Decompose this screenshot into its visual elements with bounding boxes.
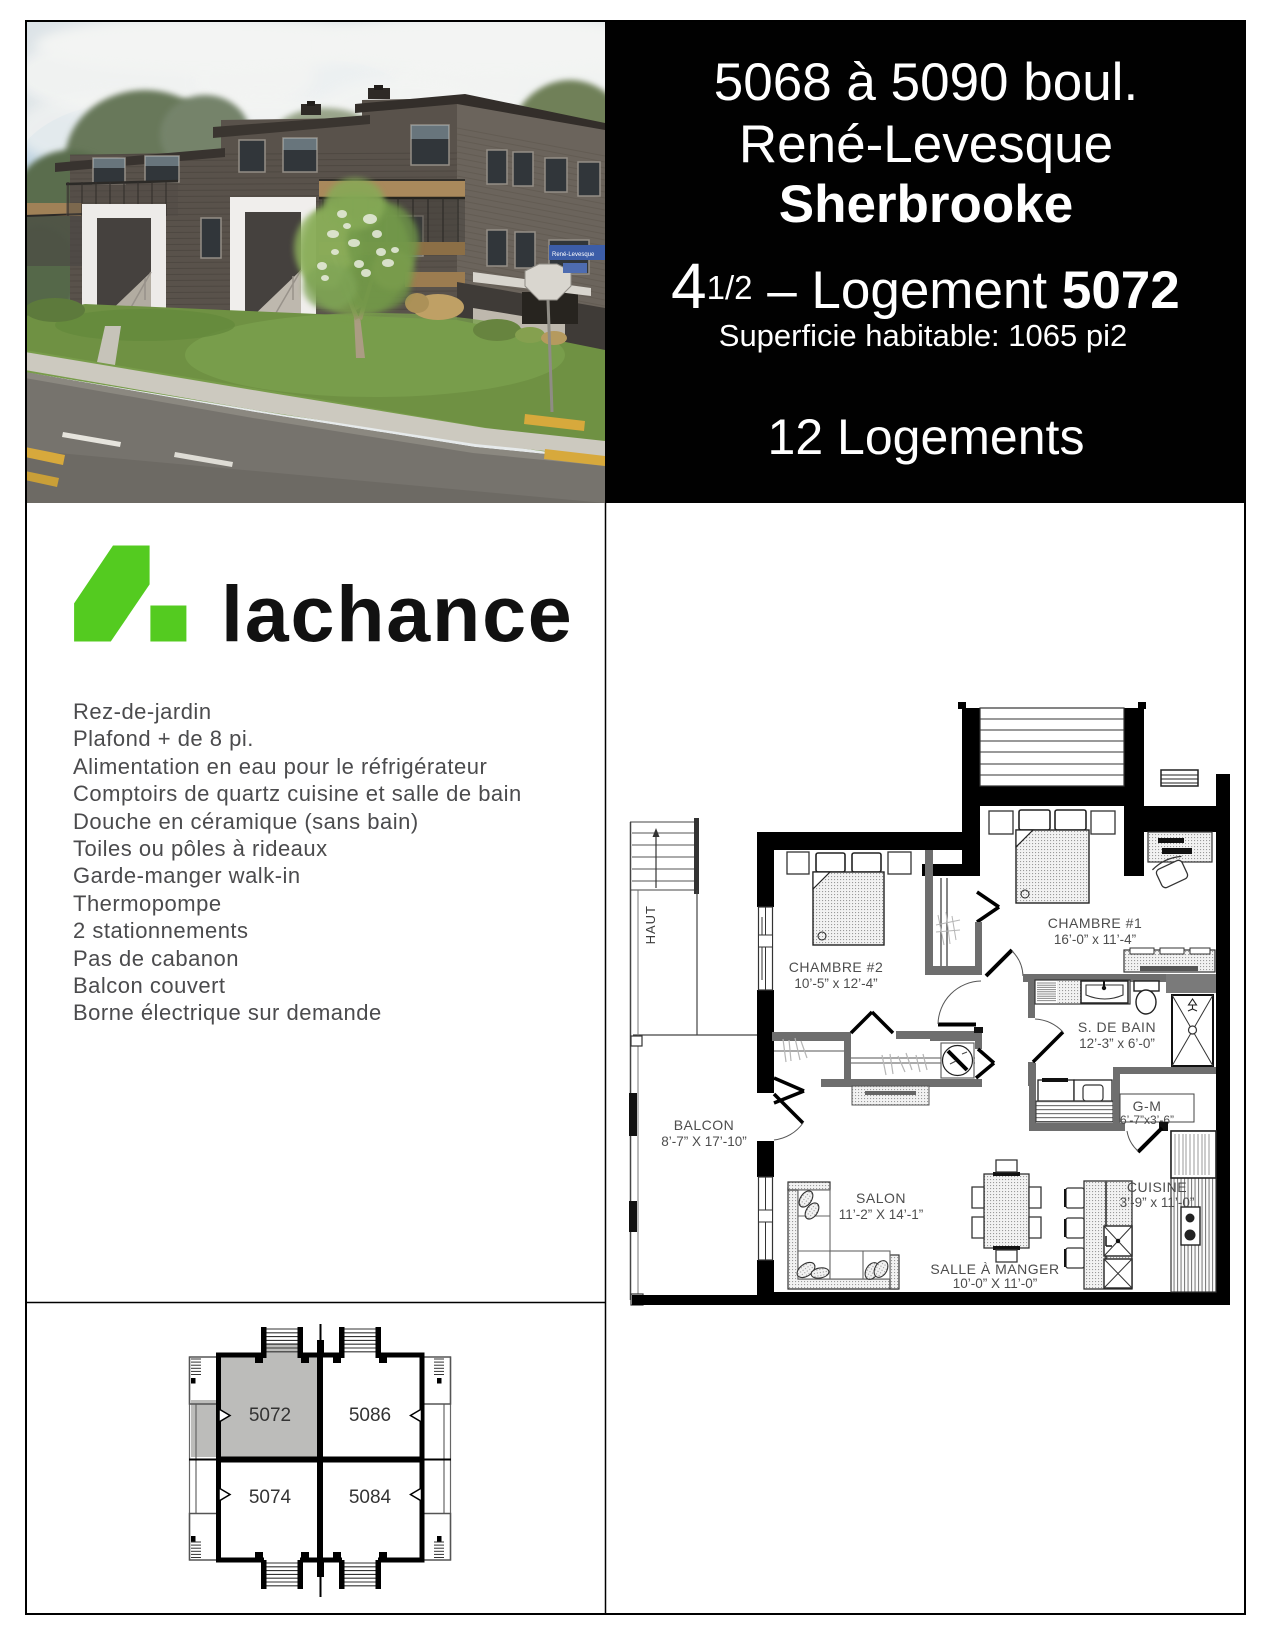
svg-text:Garde-manger walk-in: Garde-manger walk-in <box>73 863 301 888</box>
svg-text:Balcon couvert: Balcon couvert <box>73 973 226 998</box>
svg-text:Toiles ou pôles à rideaux: Toiles ou pôles à rideaux <box>73 836 328 861</box>
svg-text:Borne électrique sur demande: Borne électrique sur demande <box>73 1000 382 1025</box>
svg-text:SALON: SALON <box>856 1190 906 1206</box>
svg-text:5084: 5084 <box>349 1487 392 1508</box>
svg-text:René-Levesque: René-Levesque <box>739 115 1113 174</box>
svg-text:SALLE À MANGER: SALLE À MANGER <box>930 1261 1059 1277</box>
svg-text:Sherbrooke: Sherbrooke <box>779 175 1074 234</box>
svg-text:12’-3” x 6’-0”: 12’-3” x 6’-0” <box>1079 1036 1155 1051</box>
svg-text:10’-0” X 11’-0”: 10’-0” X 11’-0” <box>953 1276 1038 1291</box>
svg-text:CHAMBRE #1: CHAMBRE #1 <box>1048 915 1142 931</box>
svg-text:10’-5” x 12’-4”: 10’-5” x 12’-4” <box>794 976 877 991</box>
svg-text:5074: 5074 <box>249 1487 292 1508</box>
svg-text:René-Levesque: René-Levesque <box>552 252 595 258</box>
svg-text:lachance: lachance <box>221 569 574 658</box>
svg-text:HAUT: HAUT <box>643 905 658 944</box>
svg-text:2 stationnements: 2 stationnements <box>73 918 249 943</box>
svg-text:Rez-de-jardin: Rez-de-jardin <box>73 699 212 724</box>
svg-text:Superficie habitable: 1065 pi2: Superficie habitable: 1065 pi2 <box>719 318 1127 353</box>
svg-text:Douche en céramique (sans bain: Douche en céramique (sans bain) <box>73 809 419 834</box>
svg-text:CHAMBRE #2: CHAMBRE #2 <box>789 959 883 975</box>
svg-text:Plafond + de 8 pi.: Plafond + de 8 pi. <box>73 726 254 751</box>
svg-text:3’-9” x 11’-0”: 3’-9” x 11’-0” <box>1120 1195 1195 1210</box>
svg-text:5068 à 5090 boul.: 5068 à 5090 boul. <box>714 53 1138 112</box>
svg-text:12 Logements: 12 Logements <box>768 409 1085 465</box>
svg-text:Pas de cabanon: Pas de cabanon <box>73 946 239 971</box>
svg-text:11’-2” X 14’-1”: 11’-2” X 14’-1” <box>839 1207 924 1222</box>
svg-text:16’-0” x 11’-4”: 16’-0” x 11’-4” <box>1054 932 1136 947</box>
svg-text:G-M: G-M <box>1133 1098 1162 1114</box>
svg-text:BALCON: BALCON <box>674 1117 735 1133</box>
svg-text:S. DE BAIN: S. DE BAIN <box>1078 1019 1156 1035</box>
svg-text:CUISINE: CUISINE <box>1127 1179 1187 1195</box>
svg-text:Comptoirs de quartz cuisine et: Comptoirs de quartz cuisine et salle de … <box>73 781 522 806</box>
svg-text:8’-7” X 17’-10”: 8’-7” X 17’-10” <box>661 1134 747 1149</box>
svg-text:Thermopompe: Thermopompe <box>73 891 222 916</box>
svg-text:5086: 5086 <box>349 1405 391 1426</box>
svg-text:5072: 5072 <box>249 1405 291 1426</box>
svg-text:Alimentation en eau pour le ré: Alimentation en eau pour le réfrigérateu… <box>73 754 487 779</box>
